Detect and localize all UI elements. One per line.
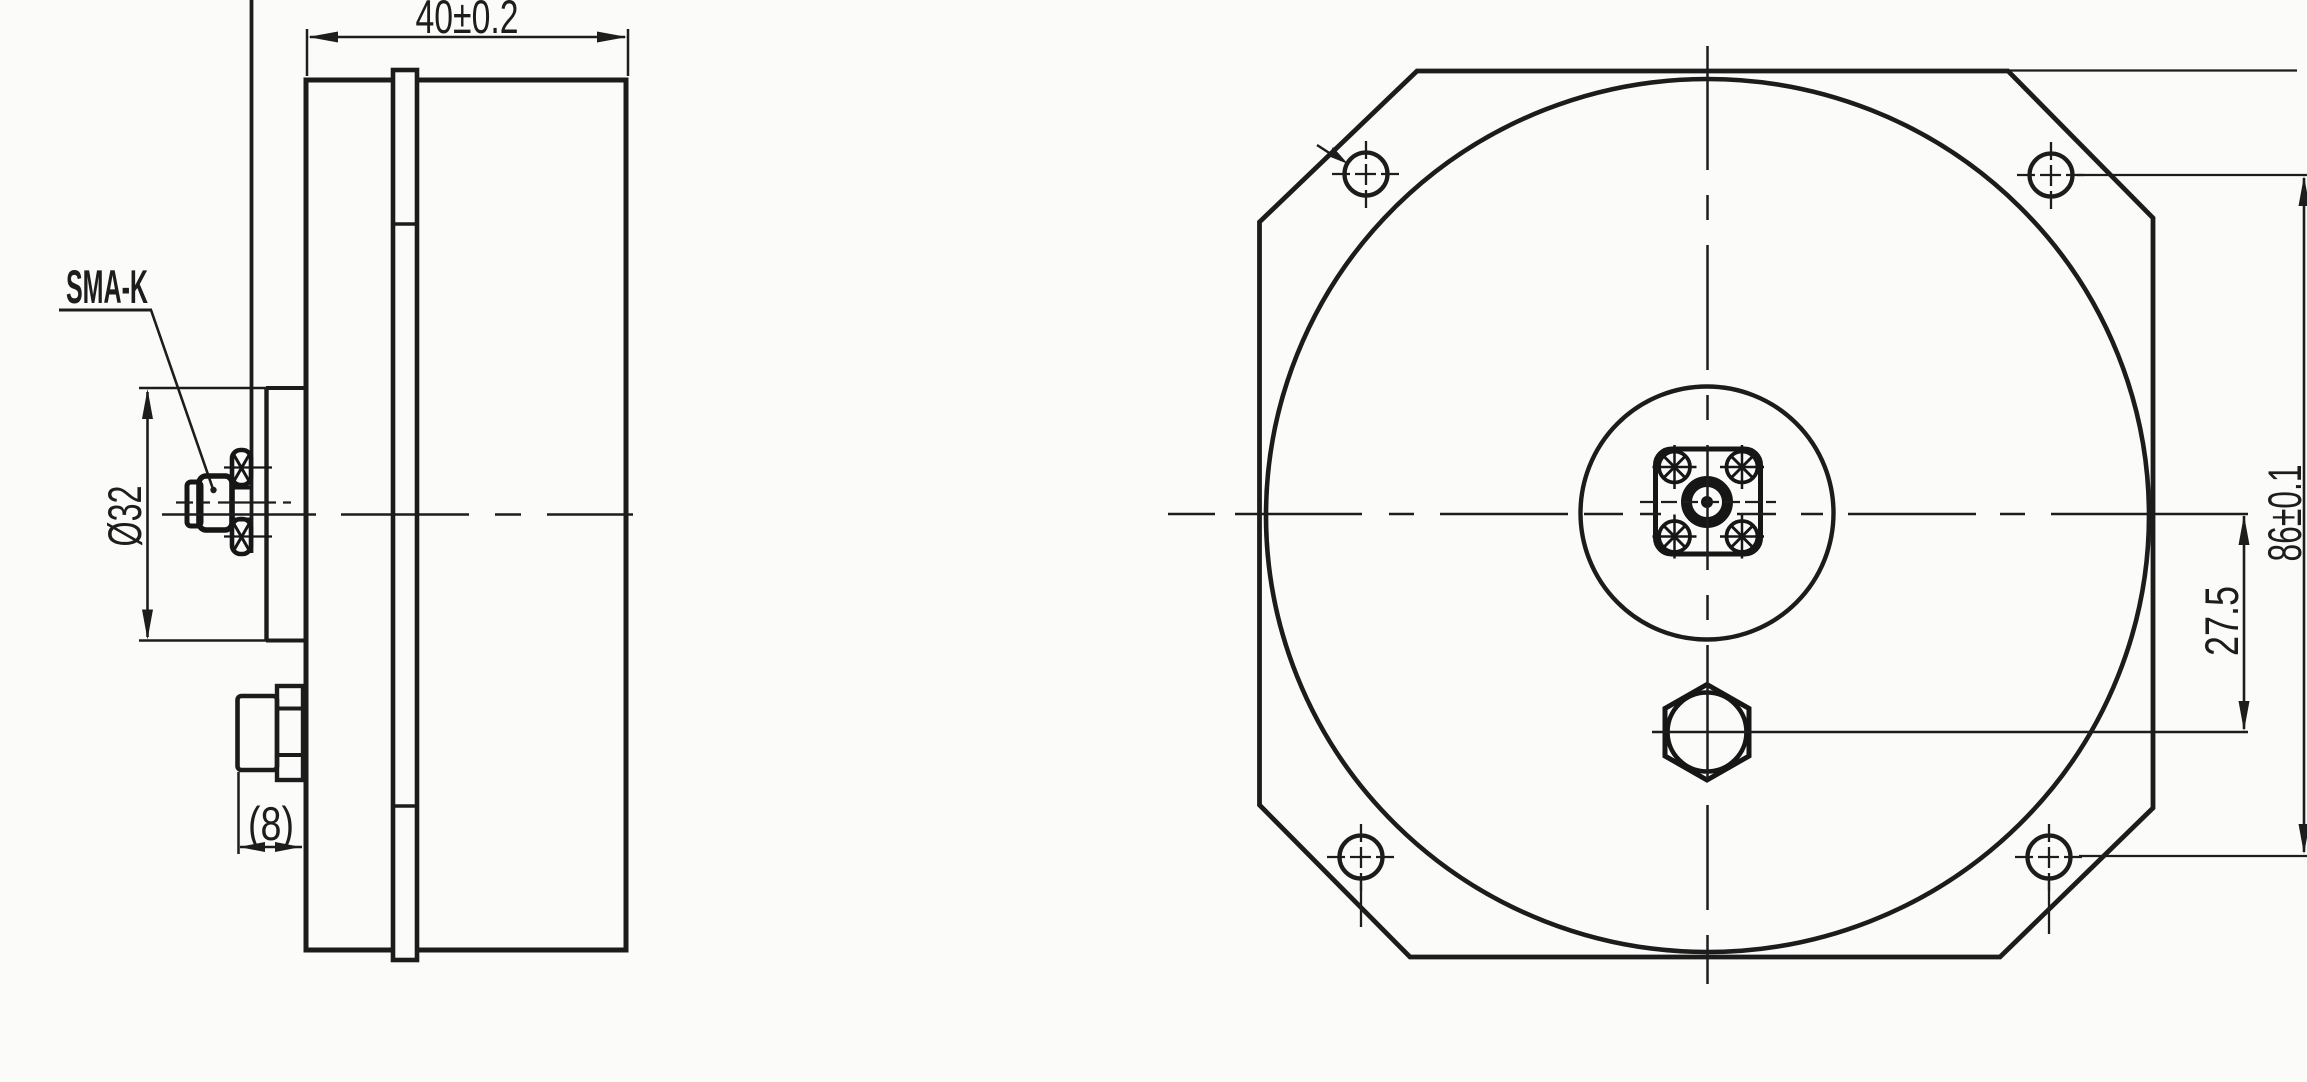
svg-text:Ø32: Ø32: [98, 486, 151, 547]
svg-text:(8): (8): [248, 797, 294, 850]
svg-text:40±0.2: 40±0.2: [416, 0, 519, 43]
svg-text:SMA-K: SMA-K: [66, 260, 148, 313]
svg-text:27.5: 27.5: [2195, 586, 2248, 656]
svg-text:86±0.1: 86±0.1: [2258, 465, 2307, 562]
